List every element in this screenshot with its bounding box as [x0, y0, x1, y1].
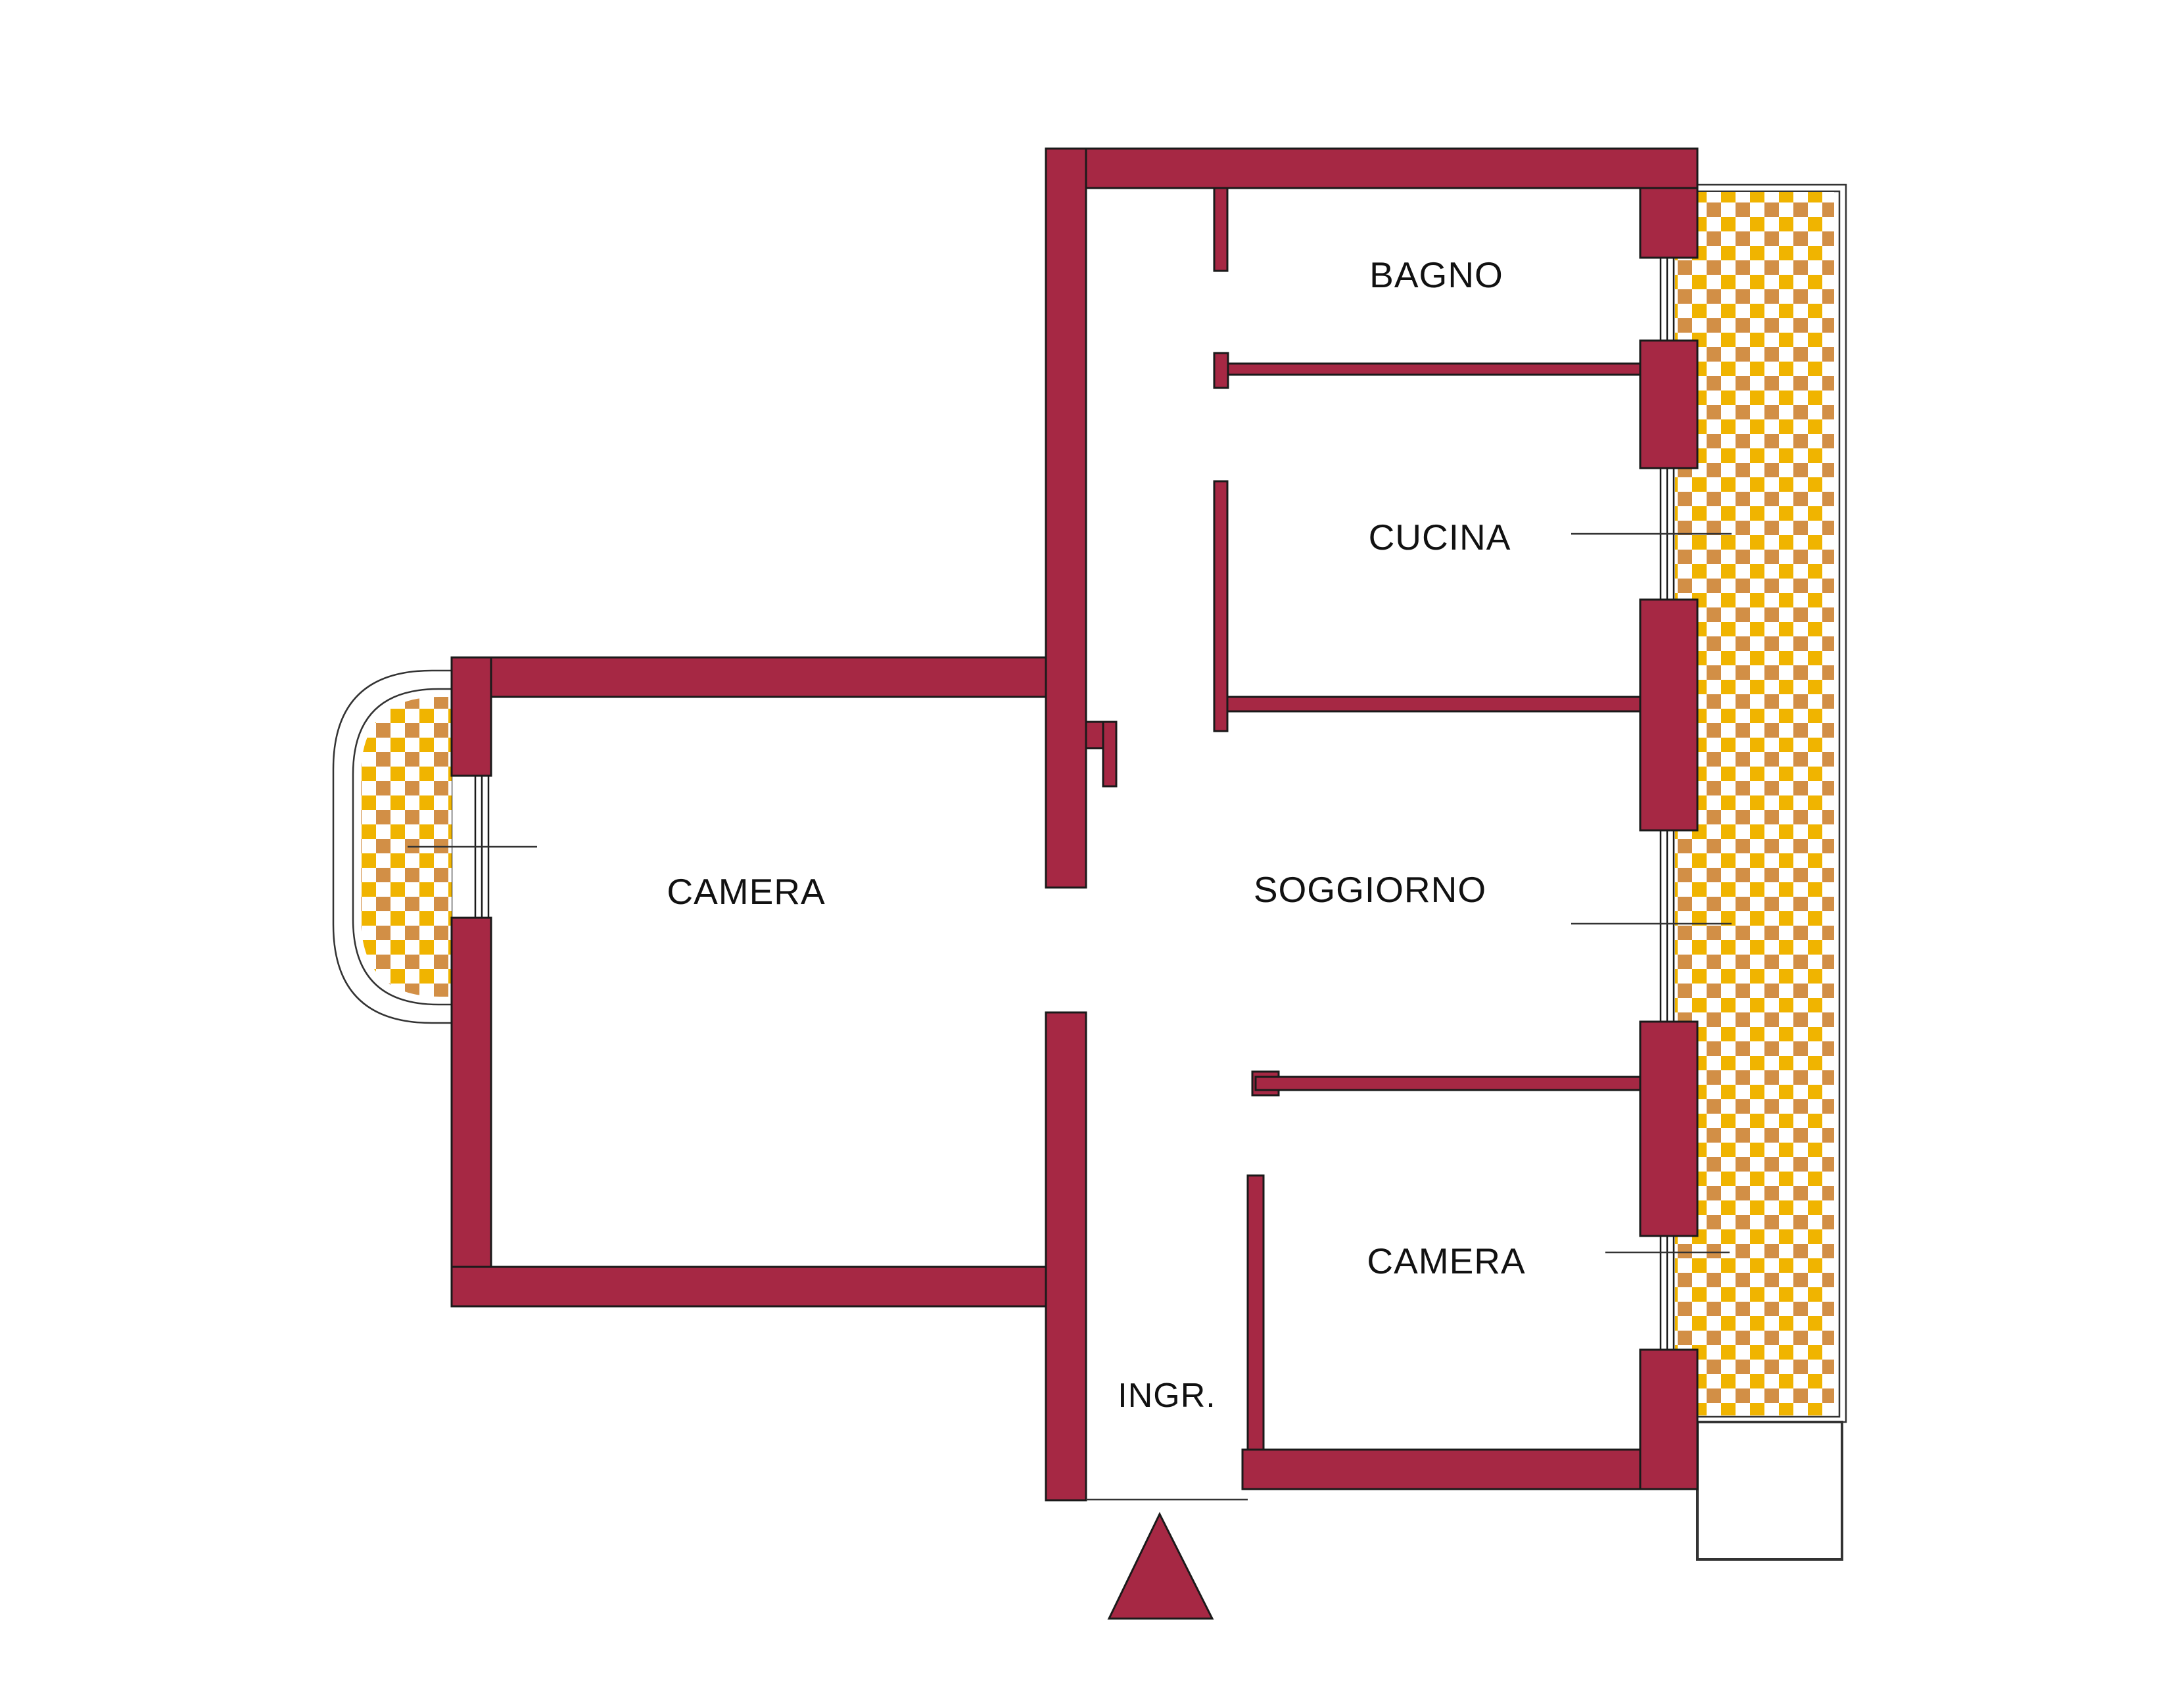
wall-partition-cucina: [1214, 481, 1227, 731]
room-label-camera-left: CAMERA: [667, 871, 825, 912]
balcony-right: [1675, 185, 1846, 1422]
wall-corridor-left-lower: [1046, 1012, 1086, 1500]
wall-hall-return-stub-v: [1103, 722, 1116, 786]
wall-pier-3: [1640, 600, 1697, 830]
wall-pier-2: [1640, 341, 1697, 468]
wall-camera-left-top: [452, 657, 1046, 697]
balcony-right-tile-pattern: [1675, 192, 1834, 1415]
wall-pier-4: [1640, 1022, 1697, 1236]
floor-plan-drawing: BAGNO CUCINA SOGGIORNO CAMERA CAMERA ING…: [0, 0, 2174, 1708]
room-label-camera-right: CAMERA: [1367, 1241, 1525, 1281]
room-label-soggiorno: SOGGIORNO: [1254, 869, 1486, 910]
wall-camera-left-west-upper: [452, 657, 491, 776]
floor-plan-canvas: BAGNO CUCINA SOGGIORNO CAMERA CAMERA ING…: [0, 0, 2174, 1708]
wall-bottom: [1242, 1450, 1697, 1489]
wall-camera-left-west-lower: [452, 918, 491, 1306]
wall-corridor-left-upper: [1046, 149, 1086, 888]
wall-partition-cap: [1214, 353, 1228, 388]
balcony-right-lower-platform: [1697, 1422, 1842, 1559]
wall-partition-camera-right: [1248, 1175, 1264, 1457]
wall-camera-left-bottom: [452, 1267, 1046, 1306]
wall-divider-cucina-soggiorno: [1227, 697, 1640, 711]
wall-partition-bagno: [1214, 188, 1227, 271]
wall-top: [1046, 149, 1697, 188]
wall-divider-bagno-cucina: [1228, 364, 1640, 375]
room-label-bagno: BAGNO: [1369, 254, 1503, 295]
wall-pier-1: [1640, 188, 1697, 258]
wall-pier-5: [1640, 1350, 1697, 1489]
room-label-ingresso: INGR.: [1118, 1377, 1216, 1415]
wall-divider-soggiorno-camera: [1256, 1077, 1642, 1090]
room-label-cucina: CUCINA: [1369, 517, 1511, 557]
